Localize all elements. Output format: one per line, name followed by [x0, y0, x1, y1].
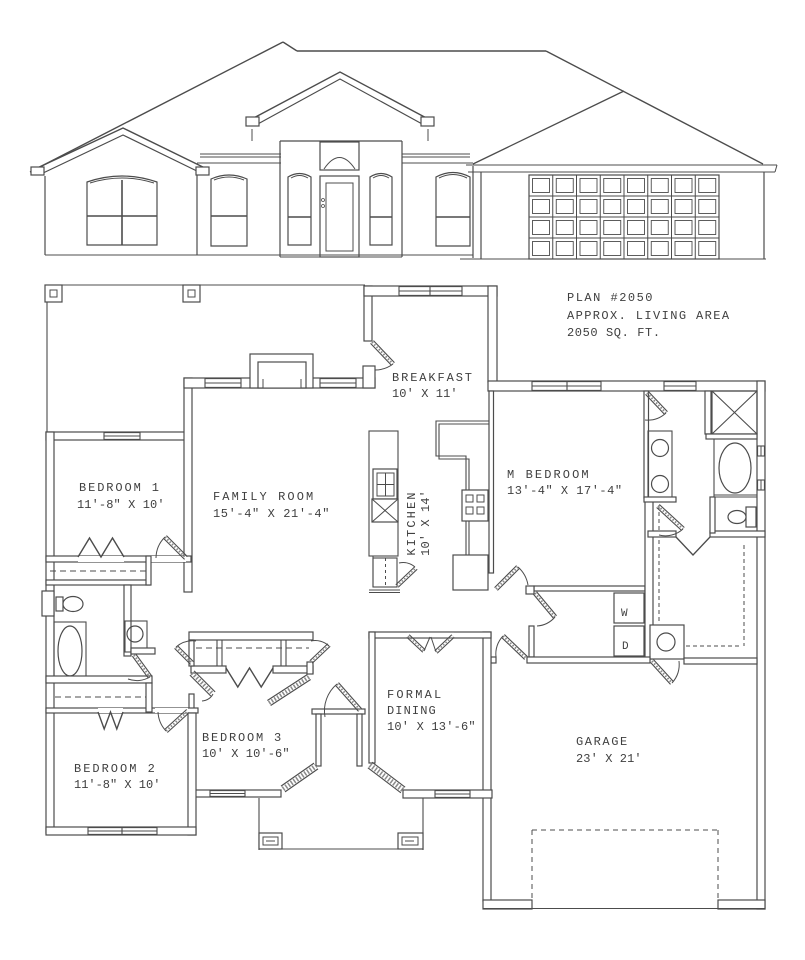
svg-text:10' X 14': 10' X 14': [419, 490, 433, 556]
svg-text:FORMAL: FORMAL: [387, 688, 443, 702]
svg-text:BEDROOM 3: BEDROOM 3: [202, 731, 283, 745]
svg-text:10' X 11': 10' X 11': [392, 387, 458, 401]
svg-text:BEDROOM 1: BEDROOM 1: [79, 481, 161, 495]
svg-text:FAMILY ROOM: FAMILY ROOM: [213, 490, 315, 504]
svg-text:10' X 13'-6": 10' X 13'-6": [387, 720, 476, 734]
svg-text:2050 SQ. FT.: 2050 SQ. FT.: [567, 326, 661, 340]
svg-text:APPROX. LIVING AREA: APPROX. LIVING AREA: [567, 309, 730, 323]
svg-text:10' X 10'-6": 10' X 10'-6": [202, 747, 290, 761]
svg-text:15'-4" X 21'-4": 15'-4" X 21'-4": [213, 507, 330, 521]
svg-text:DINING: DINING: [387, 704, 437, 718]
svg-text:11'-8" X 10': 11'-8" X 10': [77, 498, 165, 512]
svg-text:11'-8" X 10': 11'-8" X 10': [74, 778, 160, 792]
svg-text:W: W: [621, 608, 628, 620]
svg-text:13'-4" X 17'-4": 13'-4" X 17'-4": [507, 484, 623, 498]
svg-text:KITCHEN: KITCHEN: [405, 490, 419, 555]
svg-text:GARAGE: GARAGE: [576, 735, 629, 749]
svg-text:PLAN #2050: PLAN #2050: [567, 291, 654, 305]
svg-text:BREAKFAST: BREAKFAST: [392, 371, 474, 385]
svg-text:M BEDROOM: M BEDROOM: [507, 468, 591, 482]
svg-text:BEDROOM 2: BEDROOM 2: [74, 762, 157, 776]
svg-text:D: D: [622, 641, 629, 653]
svg-text:23' X 21': 23' X 21': [576, 752, 642, 766]
